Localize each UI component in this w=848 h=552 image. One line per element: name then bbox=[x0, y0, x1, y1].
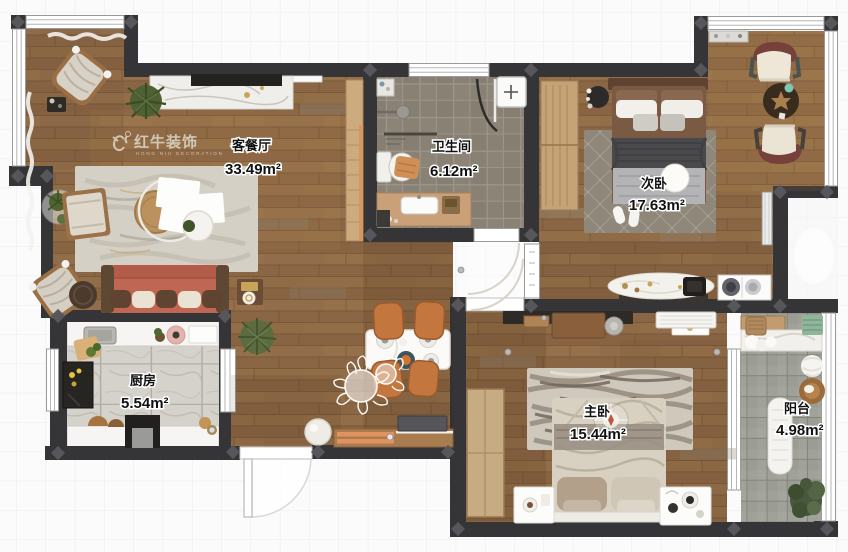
svg-text:15.44m²: 15.44m² bbox=[570, 426, 626, 443]
svg-text:客餐厅: 客餐厅 bbox=[232, 138, 271, 153]
svg-text:红牛装饰: 红牛装饰 bbox=[134, 133, 198, 151]
svg-text:33.49m²: 33.49m² bbox=[225, 161, 281, 178]
svg-text:17.63m²: 17.63m² bbox=[629, 197, 685, 214]
svg-text:卫生间: 卫生间 bbox=[432, 139, 471, 154]
svg-text:4.98m²: 4.98m² bbox=[776, 422, 824, 439]
svg-text:厨房: 厨房 bbox=[130, 373, 156, 388]
svg-text:5.54m²: 5.54m² bbox=[121, 395, 169, 412]
svg-text:次卧: 次卧 bbox=[641, 176, 667, 191]
svg-text:HONG NIU DECORATION: HONG NIU DECORATION bbox=[136, 151, 224, 156]
svg-text:6.12m²: 6.12m² bbox=[430, 163, 478, 180]
svg-text:阳台: 阳台 bbox=[784, 401, 810, 416]
svg-text:主卧: 主卧 bbox=[584, 404, 610, 419]
